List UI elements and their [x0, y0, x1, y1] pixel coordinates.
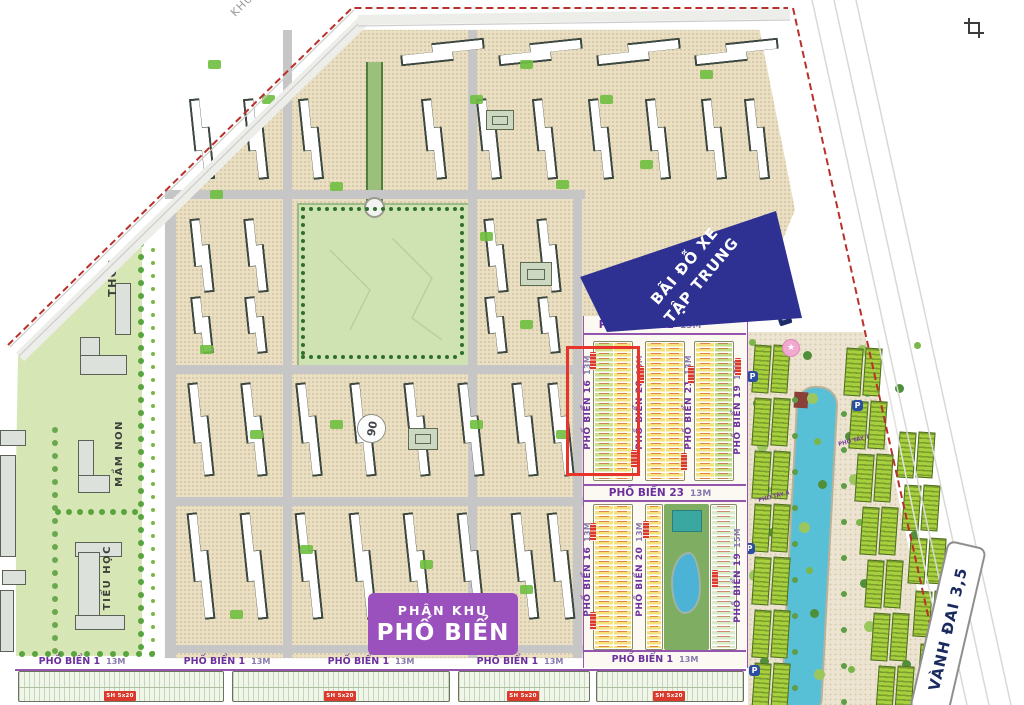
tree — [132, 509, 138, 515]
green-patch — [250, 430, 263, 439]
tree — [151, 612, 155, 616]
tree — [151, 638, 155, 642]
tree — [814, 438, 821, 445]
lot-block — [593, 504, 633, 650]
tree — [151, 326, 155, 330]
tree — [52, 505, 58, 511]
tree — [52, 492, 58, 498]
rowhouse — [770, 609, 790, 658]
apartment-building — [189, 97, 215, 180]
tree — [138, 631, 144, 637]
rowhouse — [884, 559, 904, 608]
street-label-bottom: PHỐ BIỂN 113M — [184, 656, 271, 667]
tree — [138, 449, 144, 455]
tree — [52, 518, 58, 524]
tree — [99, 509, 105, 515]
tree — [138, 514, 144, 520]
tree — [151, 495, 155, 499]
green-patch — [330, 182, 343, 191]
tree — [151, 508, 155, 512]
tree — [121, 509, 127, 515]
green-patch — [262, 95, 275, 104]
tree — [151, 248, 155, 252]
rowhouse — [875, 665, 895, 705]
tree — [151, 443, 155, 447]
tree — [138, 319, 144, 325]
rowhouse — [751, 556, 771, 605]
road — [165, 365, 585, 374]
rowhouse — [770, 662, 790, 705]
tree — [138, 618, 144, 624]
tree — [136, 651, 142, 657]
tree — [151, 417, 155, 421]
road — [165, 212, 176, 658]
lot-size-tag: SH 5x20 — [104, 691, 136, 701]
tree — [138, 397, 144, 403]
tree — [52, 596, 58, 602]
tree — [52, 440, 58, 446]
tree — [806, 567, 813, 574]
tree — [138, 293, 144, 299]
tree — [52, 531, 58, 537]
tree — [19, 651, 25, 657]
star-plaza-icon: ★ — [782, 339, 800, 357]
rowhouse — [770, 503, 790, 552]
tree — [848, 666, 855, 673]
tree — [138, 501, 144, 507]
lot-tag — [590, 612, 596, 630]
tree — [52, 427, 58, 433]
sports-court — [672, 510, 702, 532]
tree — [52, 609, 58, 615]
tree — [138, 644, 144, 650]
rowhouse — [751, 397, 771, 446]
tree — [138, 592, 144, 598]
tree — [138, 553, 144, 559]
tree — [52, 557, 58, 563]
rowhouse — [889, 612, 909, 661]
rowhouse — [896, 431, 916, 478]
lot-size-tag: SH 5x20 — [324, 691, 356, 701]
street-label-bottom: PHỐ BIỂN 113M — [328, 656, 415, 667]
tree — [151, 274, 155, 278]
tree — [138, 306, 144, 312]
green-patch — [520, 320, 533, 329]
tree — [138, 345, 144, 351]
tree — [151, 521, 155, 525]
rowhouse — [854, 453, 874, 502]
tree — [138, 566, 144, 572]
school-building — [80, 355, 127, 375]
tree — [151, 573, 155, 577]
tree — [66, 509, 72, 515]
rowhouse — [921, 484, 941, 531]
school-building — [0, 430, 26, 446]
tree — [151, 560, 155, 564]
school-building — [78, 552, 100, 616]
tree — [138, 371, 144, 377]
school-building — [75, 615, 125, 630]
tree — [138, 241, 144, 247]
green-patch — [208, 60, 221, 69]
tree — [814, 669, 825, 680]
lot-tag — [688, 366, 694, 384]
green-patch — [640, 160, 653, 169]
tree — [151, 287, 155, 291]
lot-size-tag: SH 5x20 — [653, 691, 685, 701]
lot-size-tag: SH 5x20 — [507, 691, 539, 701]
rowhouse — [865, 559, 885, 608]
tree — [138, 475, 144, 481]
green-patch — [300, 545, 313, 554]
street-label-bottom: PHỐ BIỂN 113M — [477, 656, 564, 667]
tree — [151, 352, 155, 356]
street-label-v: PHỐ BIỂN 1915M — [733, 528, 743, 623]
tree — [151, 534, 155, 538]
tree — [799, 522, 810, 533]
rowhouse — [751, 609, 771, 658]
green-patch — [480, 232, 493, 241]
green-patch — [520, 60, 533, 69]
lot-block — [694, 341, 734, 481]
lot-tag — [712, 570, 718, 588]
highlight-rectangle — [566, 346, 640, 476]
tree — [32, 651, 38, 657]
green-patch — [210, 190, 223, 199]
school-building — [0, 590, 14, 652]
tree — [138, 254, 144, 260]
tree — [151, 313, 155, 317]
tree — [138, 384, 144, 390]
tree — [151, 391, 155, 395]
zone-subtitle: PHÂN KHU — [398, 603, 488, 618]
tree — [138, 540, 144, 546]
rowhouse — [862, 347, 882, 396]
tree — [77, 509, 83, 515]
rowhouse — [873, 453, 893, 502]
green-patch — [330, 420, 343, 429]
school-label-mam-non: MẦM NON — [114, 420, 125, 487]
school-building — [78, 475, 110, 493]
tree — [138, 436, 144, 442]
tree — [52, 570, 58, 576]
school-building — [0, 455, 16, 557]
lot-tag — [590, 523, 596, 541]
zone-title: PHỐ BIỂN — [377, 620, 510, 646]
tree — [138, 488, 144, 494]
rowhouse — [902, 484, 922, 531]
school-label-tieu-hoc: TIỂU HỌC — [102, 545, 113, 610]
pool-garden — [664, 504, 709, 650]
tree — [149, 651, 155, 657]
tree — [151, 625, 155, 629]
corner-note: KHU D — [228, 0, 266, 19]
school-label-thcs: THCS — [106, 258, 119, 297]
tree — [810, 609, 819, 618]
rowhouse — [751, 344, 771, 393]
tree — [803, 351, 812, 360]
tree — [151, 456, 155, 460]
tree — [895, 384, 904, 393]
road — [283, 30, 292, 658]
green-patch — [470, 420, 483, 429]
tree — [52, 466, 58, 472]
street-label-mid: PHỐ BIỂN 2313M — [609, 487, 711, 499]
road — [165, 497, 585, 506]
tree — [52, 453, 58, 459]
tree — [151, 469, 155, 473]
zone-name-box: PHÂN KHU PHỐ BIỂN — [368, 593, 518, 655]
green-patch — [600, 95, 613, 104]
tree — [138, 423, 144, 429]
parking-icon: P — [852, 400, 863, 411]
tree — [138, 410, 144, 416]
parking-icon: P — [747, 371, 758, 382]
rowhouse — [751, 450, 771, 499]
rowhouse — [770, 556, 790, 605]
tree — [151, 482, 155, 486]
tree — [151, 430, 155, 434]
tree — [138, 579, 144, 585]
tree — [138, 462, 144, 468]
tree — [52, 479, 58, 485]
rowhouse — [859, 506, 879, 555]
tree — [110, 509, 116, 515]
tree — [151, 378, 155, 382]
tree — [914, 342, 921, 349]
tree — [52, 635, 58, 641]
street-label-bottom: PHỐ BIỂN 113M — [39, 656, 126, 667]
rowhouse — [915, 431, 935, 478]
tree — [807, 393, 818, 404]
crop-icon[interactable] — [960, 14, 988, 42]
tree — [88, 509, 94, 515]
rowhouse — [870, 612, 890, 661]
tree — [52, 544, 58, 550]
swimming-pool — [671, 552, 701, 614]
tree — [52, 583, 58, 589]
tree — [151, 365, 155, 369]
school-building — [2, 570, 26, 585]
sports-court — [408, 428, 438, 450]
street-label-bottom: PHỐ BIỂN 113M — [612, 654, 699, 665]
green-patch — [556, 180, 569, 189]
green-patch — [700, 70, 713, 79]
tree — [151, 599, 155, 603]
rowhouse — [843, 347, 863, 396]
lot-tag — [735, 358, 741, 376]
parking-icon: P — [749, 665, 760, 676]
rowhouse — [878, 506, 898, 555]
tree — [151, 300, 155, 304]
tree — [151, 547, 155, 551]
green-patch — [470, 95, 483, 104]
green-patch — [230, 610, 243, 619]
tree — [138, 280, 144, 286]
tree — [818, 480, 827, 489]
tree — [138, 358, 144, 364]
tree — [138, 605, 144, 611]
tree — [52, 622, 58, 628]
green-patch — [520, 585, 533, 594]
tree — [138, 332, 144, 338]
tree — [151, 261, 155, 265]
masterplan-map: 06 ★ PHỐ TÂY 6 PHỐ TÂY 7 P P P P THCS MẦ… — [0, 0, 1024, 705]
lot-tag — [681, 453, 687, 471]
star-glyph: ★ — [787, 344, 795, 353]
tree — [151, 586, 155, 590]
tree — [138, 527, 144, 533]
tree-path — [366, 62, 383, 207]
lot-tag — [643, 521, 649, 539]
rowhouse — [770, 397, 790, 446]
tree — [138, 267, 144, 273]
rowhouse — [907, 537, 927, 584]
tree — [151, 339, 155, 343]
tree — [151, 404, 155, 408]
sports-court — [520, 262, 552, 286]
green-patch — [420, 560, 433, 569]
sports-court — [486, 110, 514, 130]
green-patch — [200, 345, 213, 354]
central-park — [297, 203, 472, 369]
